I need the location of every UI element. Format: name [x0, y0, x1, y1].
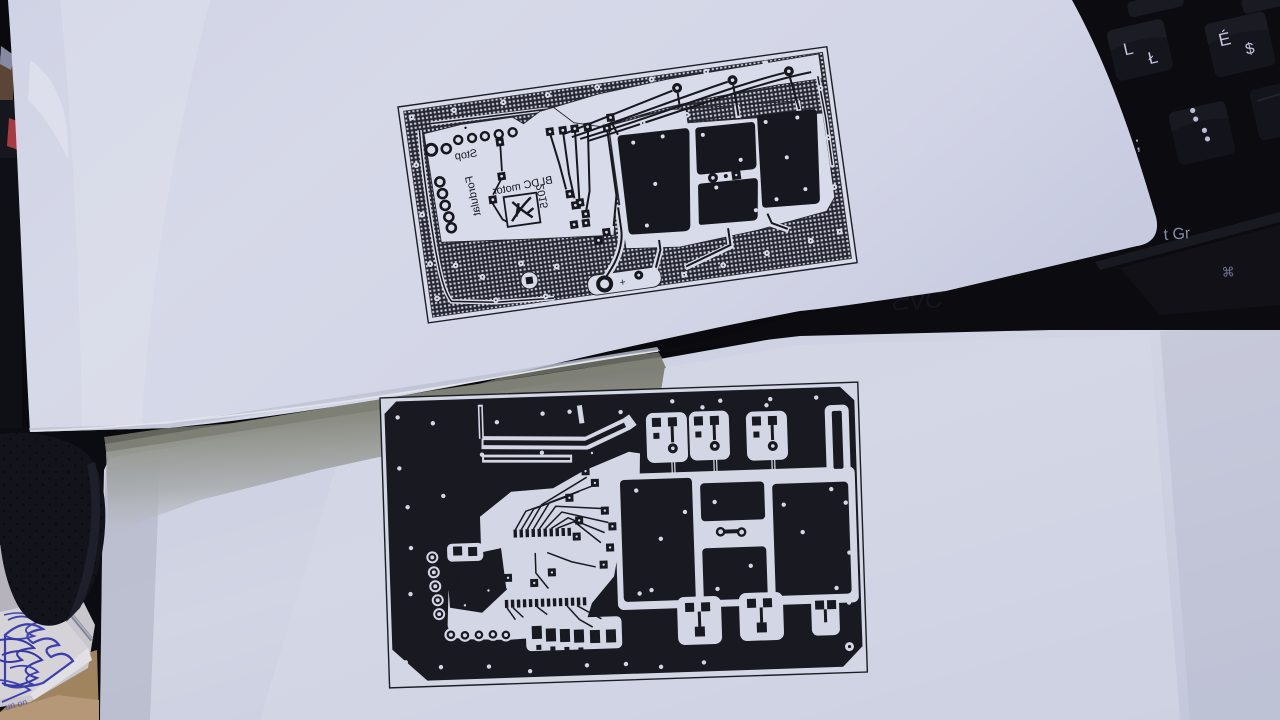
svg-text:t Gr: t Gr	[1163, 225, 1191, 244]
svg-text:⌘: ⌘	[1221, 264, 1235, 280]
